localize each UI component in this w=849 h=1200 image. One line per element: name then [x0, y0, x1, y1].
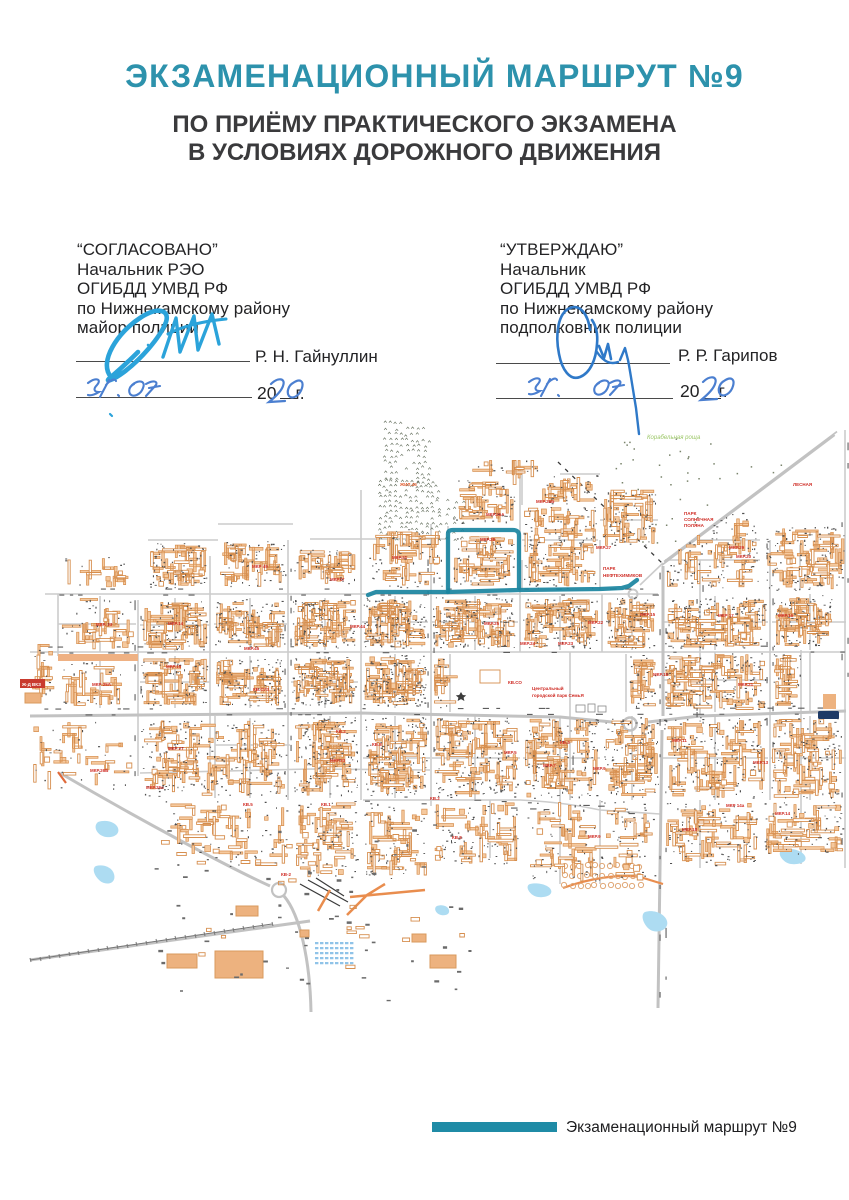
svg-text:МКР 14а: МКР 14а	[726, 803, 745, 808]
svg-text:Корабельная роща: Корабельная роща	[647, 435, 701, 441]
svg-text:КВ-2: КВ-2	[281, 872, 291, 877]
svg-text:МКР.22: МКР.22	[588, 620, 604, 625]
svg-text:МКР.45: МКР.45	[244, 646, 260, 651]
svg-text:МКР.5: МКР.5	[504, 750, 517, 755]
svg-text:МКР.24: МКР.24	[520, 641, 536, 646]
svg-text:ПОЛЯНА: ПОЛЯНА	[684, 523, 705, 528]
svg-text:МКР 17: МКР 17	[718, 613, 734, 618]
svg-text:ЛЕСНАЯ: ЛЕСНАЯ	[793, 482, 812, 487]
svg-text:МКР.26Б: МКР.26Б	[536, 499, 555, 504]
svg-text:МКР.44: МКР.44	[350, 624, 366, 629]
svg-text:МКР.26Б: МКР.26Б	[90, 768, 109, 773]
svg-text:МКР.26а: МКР.26а	[146, 785, 164, 790]
svg-text:КВ.2: КВ.2	[336, 729, 346, 734]
svg-text:КВ.5: КВ.5	[243, 802, 253, 807]
svg-text:КВ.2: КВ.2	[430, 796, 440, 801]
svg-text:МКР.14: МКР.14	[775, 811, 791, 816]
svg-text:МКР.18: МКР.18	[682, 827, 698, 832]
svg-text:МКР.14: МКР.14	[168, 621, 184, 626]
svg-text:МКР 25А: МКР 25А	[92, 682, 112, 687]
svg-text:МКР 49: МКР 49	[252, 564, 268, 569]
svg-text:КВ.8: КВ.8	[372, 742, 382, 747]
svg-text:ПАРК: ПАРК	[603, 566, 616, 571]
svg-text:МКР.26А: МКР.26А	[486, 512, 505, 517]
svg-text:Центральный: Центральный	[532, 685, 564, 691]
svg-text:НЕФТЕХИМИКОВ: НЕФТЕХИМИКОВ	[603, 573, 643, 578]
svg-text:МКР.33: МКР.33	[330, 758, 346, 763]
svg-text:МКР.9: МКР.9	[588, 834, 601, 839]
svg-text:КВ.СУЗ: КВ.СУЗ	[253, 687, 269, 692]
svg-text:МКР.15: МКР.15	[653, 672, 669, 677]
svg-text:МКР.23: МКР.23	[558, 641, 574, 646]
svg-text:МКР.20: МКР.20	[736, 554, 752, 559]
svg-text:МКР.11: МКР.11	[672, 738, 687, 743]
svg-text:КВ.СО: КВ.СО	[508, 680, 522, 685]
svg-text:МКР.15: МКР.15	[166, 664, 182, 669]
svg-text:МКР.15: МКР.15	[640, 612, 656, 617]
svg-text:МКР 27: МКР 27	[168, 746, 184, 751]
svg-text:ПАРК: ПАРК	[684, 511, 697, 516]
svg-text:ЖИЛ.45: ЖИЛ.45	[399, 482, 417, 487]
svg-text:МКР.9: МКР.9	[593, 766, 606, 771]
svg-text:СОЛНЕЧНАЯ: СОЛНЕЧНАЯ	[684, 517, 713, 522]
svg-text:городской парк СемьЯ: городской парк СемьЯ	[532, 692, 584, 698]
svg-text:МКР.27: МКР.27	[596, 545, 612, 550]
svg-text:КВ.3: КВ.3	[560, 740, 570, 745]
svg-text:МКР.29: МКР.29	[729, 545, 745, 550]
svg-text:Ж-Д ВКЗ: Ж-Д ВКЗ	[21, 682, 41, 687]
svg-text:МКР.13: МКР.13	[753, 760, 769, 765]
svg-text:МКР.21: МКР.21	[738, 682, 754, 687]
svg-text:МКР.31: МКР.31	[392, 555, 408, 560]
svg-text:МКР.16: МКР.16	[778, 613, 794, 618]
svg-text:МКР47: МКР47	[330, 577, 345, 582]
svg-text:МКР.25: МКР.25	[484, 621, 500, 626]
svg-text:КВ.8: КВ.8	[452, 835, 462, 840]
svg-text:МКР. 23: МКР. 23	[96, 622, 113, 627]
svg-text:КВ.1: КВ.1	[321, 802, 331, 807]
svg-text:МКР.28: МКР.28	[480, 537, 496, 542]
svg-text:МКР.7: МКР.7	[543, 763, 556, 768]
